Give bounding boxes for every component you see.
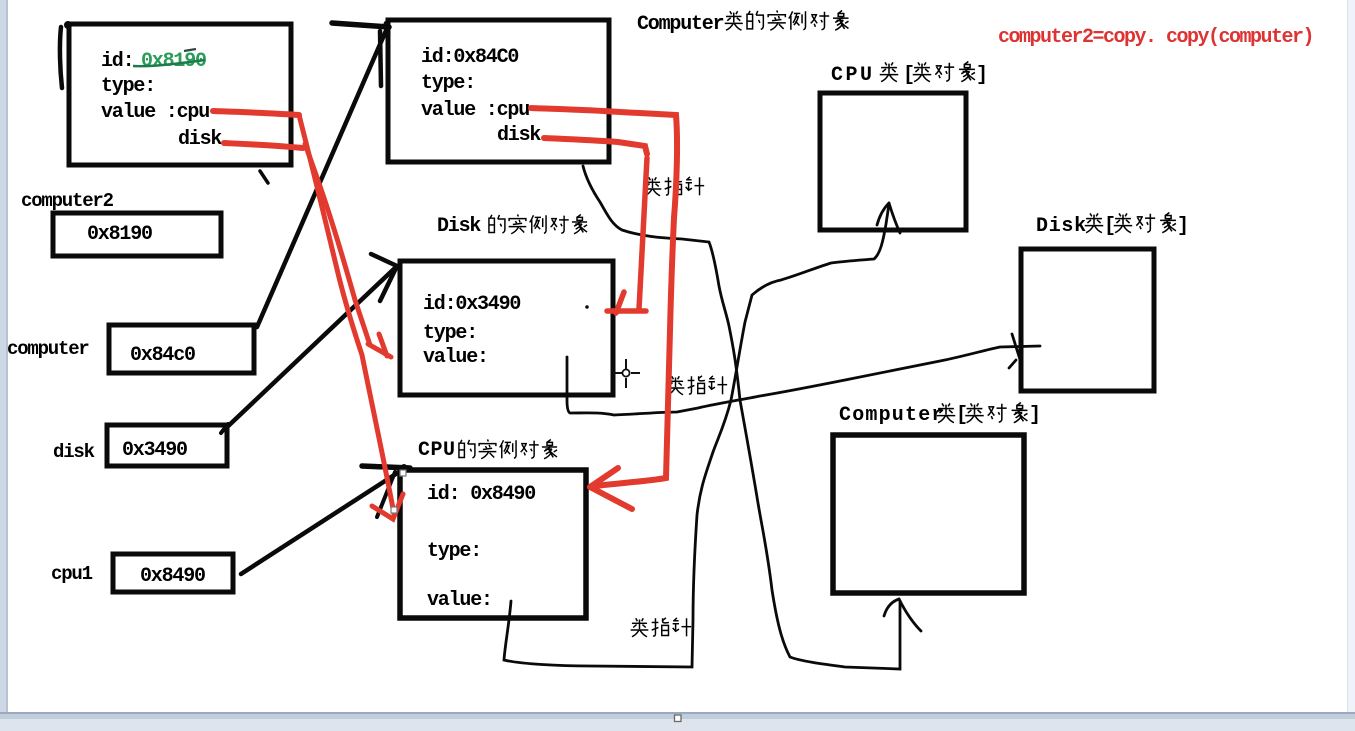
svg-text:computer2=copy. copy(computer): computer2=copy. copy(computer)	[998, 26, 1313, 49]
svg-text:Disk: Disk	[437, 215, 481, 238]
svg-text:computer: computer	[7, 338, 89, 360]
svg-text:Computer: Computer	[637, 13, 724, 36]
svg-text:0x3490: 0x3490	[122, 439, 187, 462]
svg-text:id:0x84C0: id:0x84C0	[421, 46, 518, 69]
svg-text:value :cpu: value :cpu	[421, 99, 529, 122]
svg-text:value:: value:	[427, 589, 492, 612]
svg-text:]: ]	[1029, 404, 1040, 427]
svg-text:[: [	[956, 404, 967, 427]
svg-text:type:: type:	[423, 322, 477, 345]
svg-text:disk: disk	[53, 441, 95, 463]
svg-text:0x8190: 0x8190	[87, 223, 152, 246]
svg-text:0x8490: 0x8490	[140, 565, 205, 588]
svg-text:]: ]	[976, 64, 987, 87]
svg-text:disk: disk	[178, 128, 222, 151]
svg-text:type:: type:	[421, 72, 475, 95]
svg-text:]: ]	[1177, 215, 1188, 238]
svg-text:disk: disk	[497, 124, 541, 147]
svg-text:type:: type:	[427, 540, 481, 563]
svg-text:id:: id:	[101, 50, 133, 73]
svg-text:value:: value:	[423, 346, 488, 369]
svg-text:0x84c0: 0x84c0	[130, 344, 195, 367]
svg-text:cpu1: cpu1	[51, 563, 93, 585]
svg-text:CPU: CPU	[418, 439, 456, 462]
svg-text:Disk: Disk	[1036, 215, 1087, 238]
svg-text:value :cpu: value :cpu	[101, 101, 209, 124]
svg-text:id:0x3490: id:0x3490	[423, 293, 520, 316]
svg-text:type:: type:	[101, 75, 155, 98]
svg-text:id: 0x8490: id: 0x8490	[427, 483, 535, 506]
svg-text:[: [	[1104, 215, 1115, 238]
svg-text:computer2: computer2	[21, 190, 114, 212]
svg-text:Computer: Computer	[839, 404, 945, 427]
svg-text:CPU: CPU	[831, 64, 875, 87]
svg-text:[: [	[903, 64, 914, 87]
